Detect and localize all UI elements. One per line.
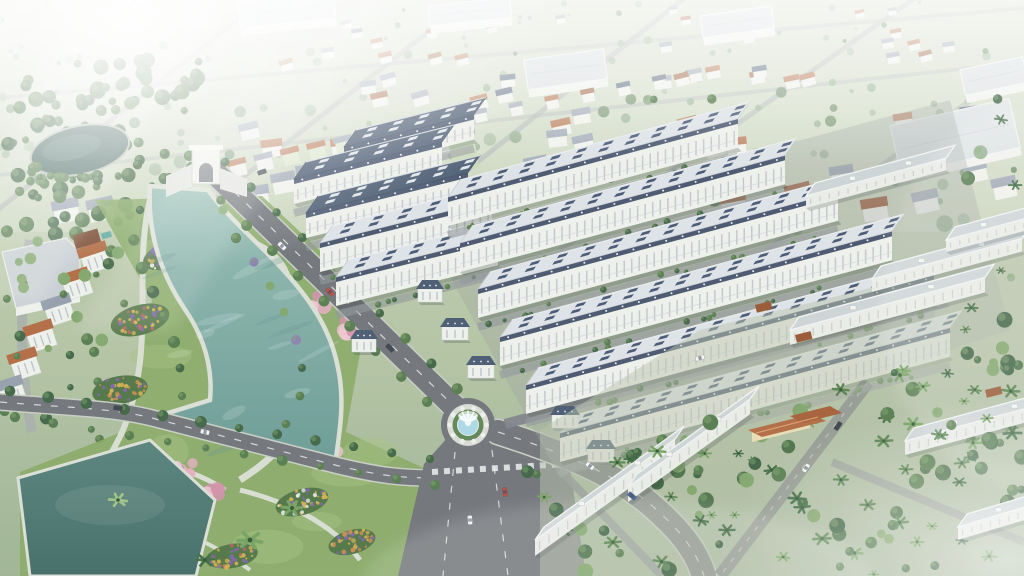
haze-layer xyxy=(0,0,1024,576)
aerial-masterplan-render xyxy=(0,0,1024,576)
render-image xyxy=(0,0,1024,576)
render-canvas xyxy=(0,0,1024,576)
